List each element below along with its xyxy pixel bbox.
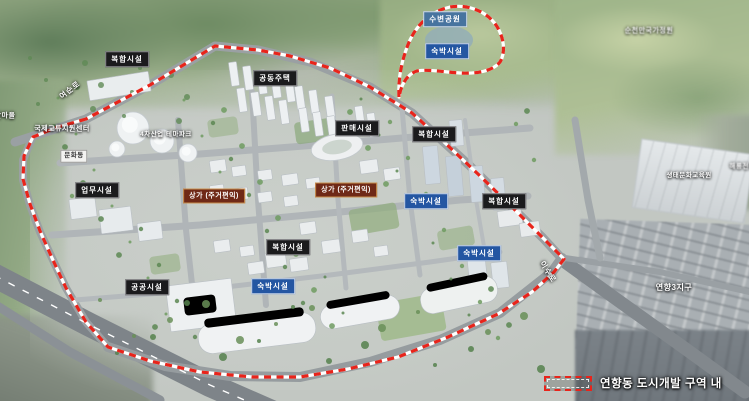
label-village-west: 안마을 [0, 113, 15, 120]
label-office: 업무시설 [75, 182, 119, 198]
legend-swatch-inner-dash [547, 379, 589, 388]
label-culture-hall: 문화동 [60, 150, 87, 163]
aerial-development-plan: 복합시설공동주택판매시설복합시설업무시설복합시설복합시설공공시설수변공원숙박시설… [0, 0, 749, 401]
label-apartments: 공동주택 [253, 70, 297, 86]
label-mixed-use-nw: 복합시설 [105, 51, 149, 67]
legend-label: 연향동 도시개발 구역 내 [600, 375, 722, 391]
label-mixed-use-ne: 복합시설 [412, 126, 456, 142]
label-lodging-southeast: 숙박시설 [457, 245, 501, 261]
label-eco-culture-center: 생태문화교육원 [666, 173, 711, 180]
label-lodging-mid: 숙박시설 [404, 193, 448, 209]
label-mixed-use-east: 복합시설 [482, 193, 526, 209]
label-lodging-north: 숙박시설 [425, 43, 469, 59]
label-waterside-park: 수변공원 [423, 11, 467, 27]
label-mixed-use-center: 복합시설 [266, 239, 310, 255]
legend-boundary-swatch [544, 376, 592, 391]
label-4th-industry-themepark: 4차산업 테마파크 [140, 132, 192, 139]
label-intl-exchange-center: 국제교류지원센터 [34, 126, 90, 133]
label-shops-west: 상가 (주거편익) [183, 189, 245, 204]
label-suncheon-bay-garden: 순천만국가정원 [625, 28, 674, 35]
label-yeonhyang-district3: 연향3지구 [656, 284, 692, 292]
label-public-facility: 공공시설 [125, 279, 169, 295]
legend: 연향동 도시개발 구역 내 [544, 375, 722, 391]
label-haeryong-village: 해룡전원마을 [730, 164, 749, 171]
label-retail: 판매시설 [335, 120, 379, 136]
label-lodging-south: 숙박시설 [251, 278, 295, 294]
label-shops-center: 상가 (주거편익) [315, 183, 377, 198]
